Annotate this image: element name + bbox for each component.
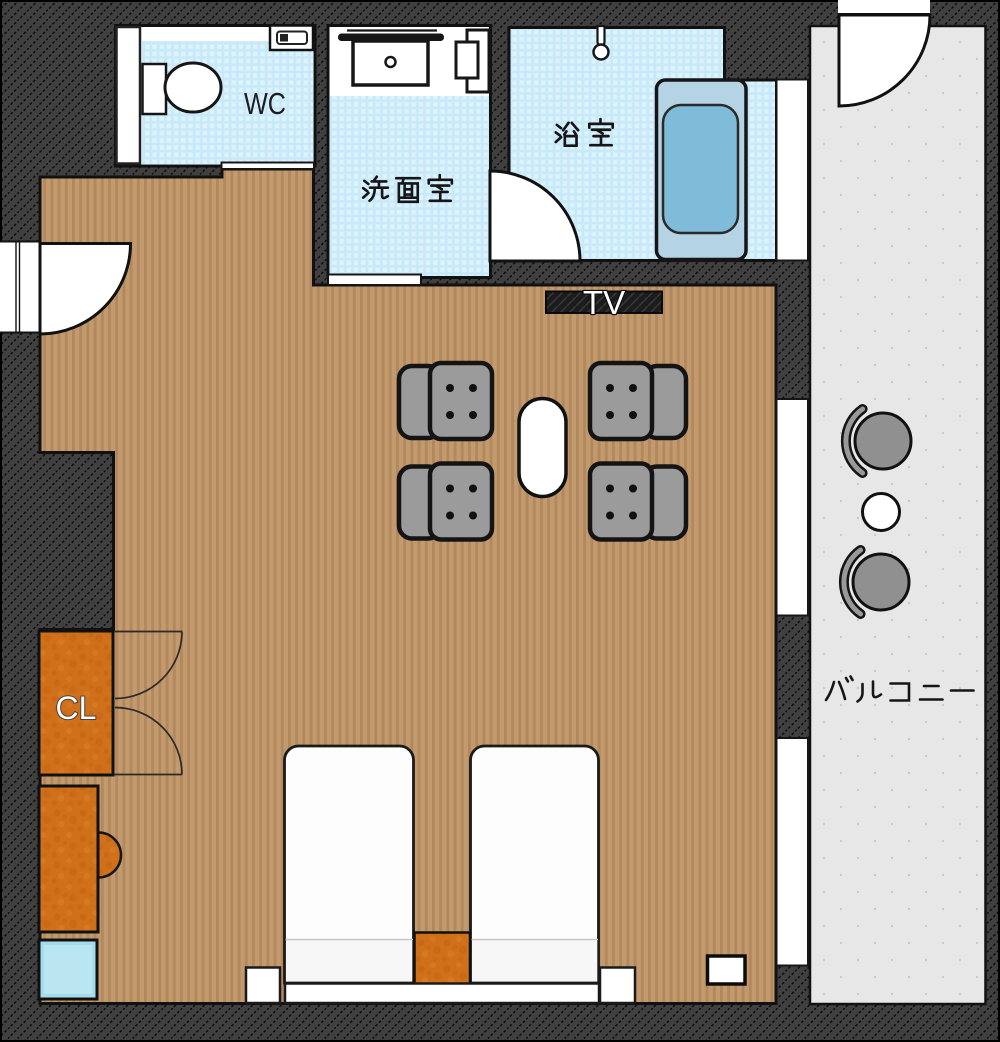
svg-text:TV: TV: [583, 284, 625, 321]
svg-text:CL: CL: [56, 690, 97, 726]
svg-text:WC: WC: [244, 86, 286, 121]
